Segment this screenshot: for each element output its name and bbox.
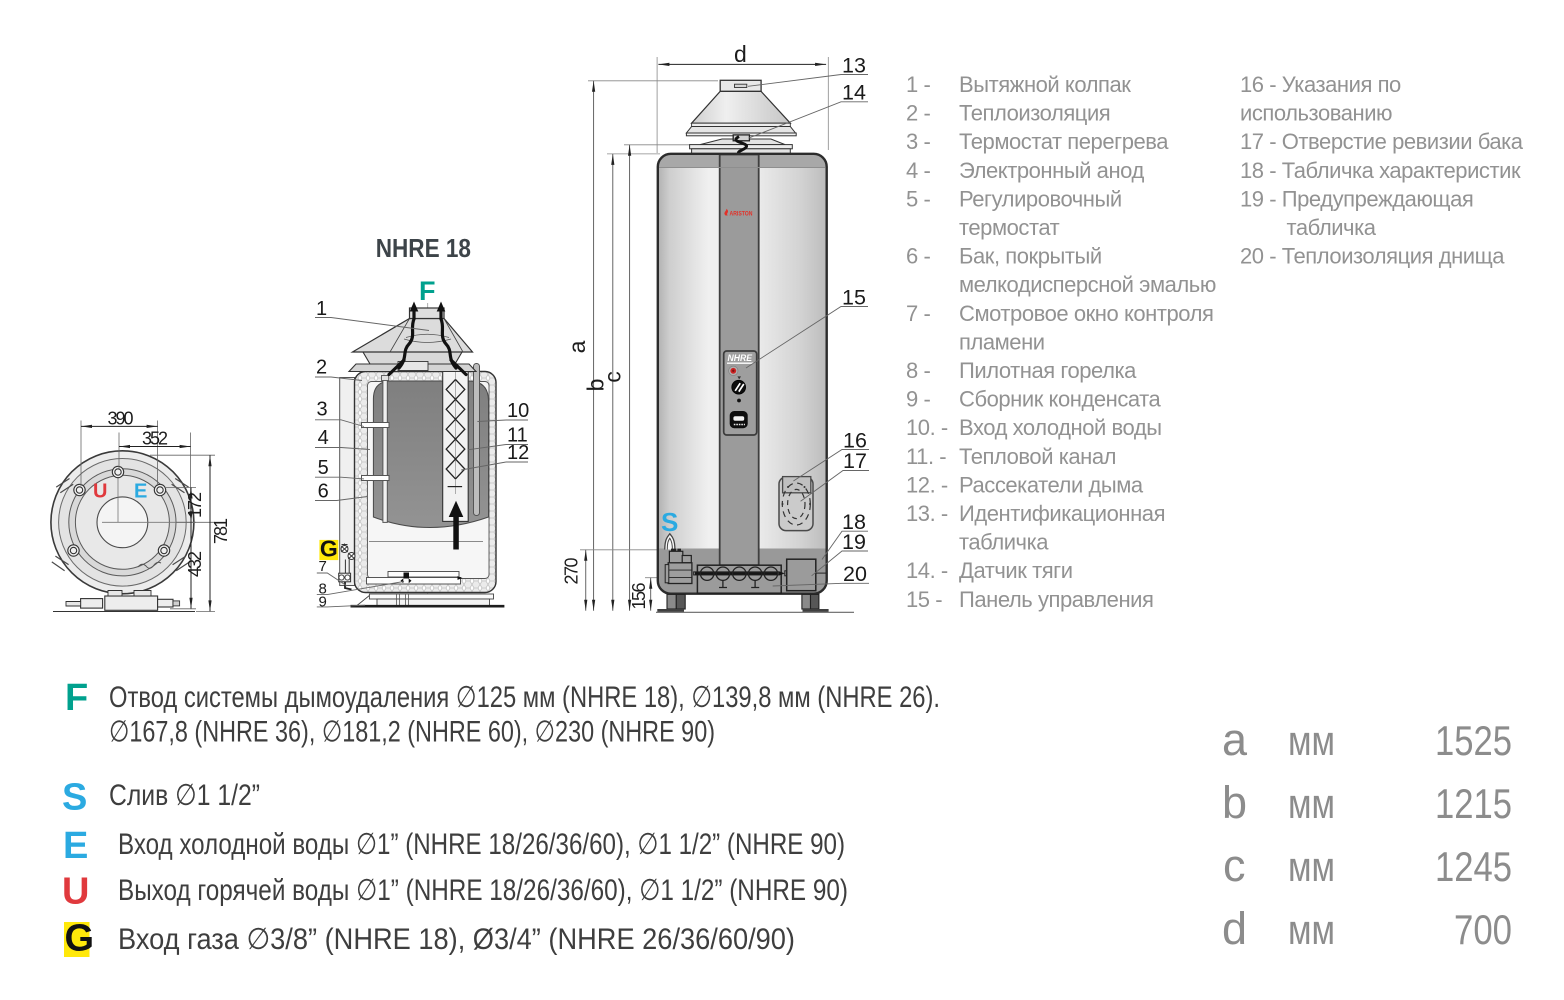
svg-text:5 -: 5 - (906, 186, 930, 211)
svg-text:U: U (62, 871, 89, 913)
svg-text:16 - Указания по: 16 - Указания по (1240, 72, 1401, 97)
svg-text:d: d (734, 41, 747, 67)
svg-text:15: 15 (842, 285, 866, 309)
svg-text:∅167,8 (NHRE 36), ∅181,2 (NHRE: ∅167,8 (NHRE 36), ∅181,2 (NHRE 60), ∅230… (109, 716, 715, 749)
svg-text:Тепловой канал: Тепловой канал (959, 444, 1116, 469)
svg-text:Вход газа ∅3/8” (NHRE 18), Ø3/: Вход газа ∅3/8” (NHRE 18), Ø3/4” (NHRE 2… (118, 923, 795, 956)
svg-text:Теплоизоляция: Теплоизоляция (959, 101, 1110, 126)
svg-text:17 - Отверстие ревизии бака: 17 - Отверстие ревизии бака (1240, 129, 1524, 154)
svg-text:мелкодисперсной эмалью: мелкодисперсной эмалью (959, 272, 1216, 297)
svg-text:9 -: 9 - (906, 387, 930, 412)
svg-text:F: F (65, 677, 88, 719)
svg-text:G: G (65, 918, 95, 960)
svg-text:15 -: 15 - (906, 587, 942, 612)
svg-text:a: a (1222, 714, 1248, 765)
svg-text:F: F (419, 276, 436, 306)
svg-text:Термостат перегрева: Термостат перегрева (959, 129, 1169, 154)
svg-text:10: 10 (507, 400, 529, 422)
svg-text:использованию: использованию (1240, 101, 1392, 126)
svg-text:432: 432 (185, 551, 205, 577)
svg-text:20 - Теплоизоляция днища: 20 - Теплоизоляция днища (1240, 244, 1505, 269)
svg-text:390: 390 (108, 409, 134, 429)
svg-text:17: 17 (843, 449, 867, 473)
svg-text:12. -: 12. - (906, 472, 948, 497)
svg-text:Пилотная горелка: Пилотная горелка (959, 358, 1137, 383)
svg-text:781: 781 (211, 518, 231, 544)
svg-text:мм: мм (1288, 717, 1335, 764)
svg-text:18 - Табличка характеристик: 18 - Табличка характеристик (1240, 158, 1521, 183)
svg-text:270: 270 (562, 558, 582, 585)
svg-text:20: 20 (843, 562, 867, 586)
svg-text:13: 13 (842, 53, 866, 77)
svg-text:Сборник конденсата: Сборник конденсата (959, 387, 1162, 412)
svg-text:E: E (63, 825, 88, 867)
svg-text:11. -: 11. - (906, 444, 946, 469)
svg-text:19: 19 (842, 530, 866, 554)
svg-text:3: 3 (317, 399, 328, 421)
svg-text:Смотровое окно контроля: Смотровое окно контроля (959, 301, 1213, 326)
svg-text:Вход холодной воды ∅1” (NHRE 1: Вход холодной воды ∅1” (NHRE 18/26/36/60… (118, 828, 845, 861)
svg-text:13. -: 13. - (906, 501, 948, 526)
svg-text:9: 9 (319, 594, 327, 611)
svg-text:Вход холодной воды: Вход холодной воды (959, 415, 1162, 440)
svg-text:Выход горячей воды ∅1” (NHRE 1: Выход горячей воды ∅1” (NHRE 18/26/36/60… (118, 874, 848, 907)
svg-text:8 -: 8 - (906, 358, 930, 383)
svg-text:NHRE: NHRE (728, 353, 753, 364)
svg-text:1215: 1215 (1435, 780, 1512, 827)
svg-text:Бак, покрытый: Бак, покрытый (959, 244, 1102, 269)
svg-text:19 - Предупреждающая: 19 - Предупреждающая (1240, 186, 1473, 211)
svg-text:мм: мм (1288, 780, 1335, 827)
svg-text:7 -: 7 - (906, 301, 930, 326)
svg-text:3 -: 3 - (906, 129, 930, 154)
svg-text:14. -: 14. - (906, 558, 948, 583)
svg-text:Датчик тяги: Датчик тяги (959, 558, 1073, 583)
svg-text:4 -: 4 - (906, 158, 930, 183)
svg-text:d: d (1222, 903, 1247, 954)
svg-text:мм: мм (1288, 906, 1335, 953)
svg-text:156: 156 (629, 583, 649, 610)
svg-text:Регулировочный: Регулировочный (959, 186, 1122, 211)
svg-text:Панель управления: Панель управления (959, 587, 1153, 612)
svg-text:c: c (1223, 840, 1246, 891)
svg-text:NHRE 18: NHRE 18 (376, 233, 471, 263)
svg-text:10. -: 10. - (906, 415, 948, 440)
svg-text:1245: 1245 (1435, 843, 1512, 890)
svg-text:6 -: 6 - (906, 244, 930, 269)
svg-text:352: 352 (142, 428, 168, 448)
svg-text:ARISTON: ARISTON (730, 210, 753, 217)
svg-text:Слив ∅1 1/2”: Слив ∅1 1/2” (109, 779, 260, 812)
svg-text:S: S (62, 777, 87, 819)
svg-text:E: E (134, 481, 147, 503)
svg-text:6: 6 (318, 481, 329, 503)
svg-text:1: 1 (316, 298, 327, 320)
svg-text:Вытяжной колпак: Вытяжной колпак (959, 72, 1131, 97)
svg-text:172: 172 (185, 492, 205, 518)
svg-text:4: 4 (318, 427, 329, 449)
svg-text:2: 2 (316, 357, 327, 379)
svg-text:Электронный анод: Электронный анод (959, 158, 1144, 183)
svg-text:Рассекатели дыма: Рассекатели дыма (959, 472, 1144, 497)
svg-text:1 -: 1 - (906, 72, 930, 97)
svg-text:700: 700 (1454, 906, 1512, 953)
svg-text:пламени: пламени (959, 329, 1045, 354)
svg-text:Отвод системы дымоудаления ∅12: Отвод системы дымоудаления ∅125 мм (NHRE… (109, 681, 940, 714)
svg-text:b: b (1222, 777, 1247, 828)
svg-text:1525: 1525 (1435, 717, 1512, 764)
svg-text:термостат: термостат (959, 215, 1060, 240)
svg-text:U: U (93, 481, 107, 503)
svg-text:c: c (600, 371, 626, 383)
svg-text:14: 14 (842, 81, 866, 105)
svg-text:мм: мм (1288, 843, 1335, 890)
svg-text:Идентификационная: Идентификационная (959, 501, 1165, 526)
svg-text:2 -: 2 - (906, 101, 930, 126)
svg-text:12: 12 (507, 442, 529, 464)
svg-text:табличка: табличка (1287, 215, 1377, 240)
svg-text:табличка: табличка (959, 530, 1049, 555)
svg-text:S: S (661, 507, 678, 537)
svg-text:5: 5 (318, 457, 329, 479)
svg-text:a: a (564, 340, 590, 353)
